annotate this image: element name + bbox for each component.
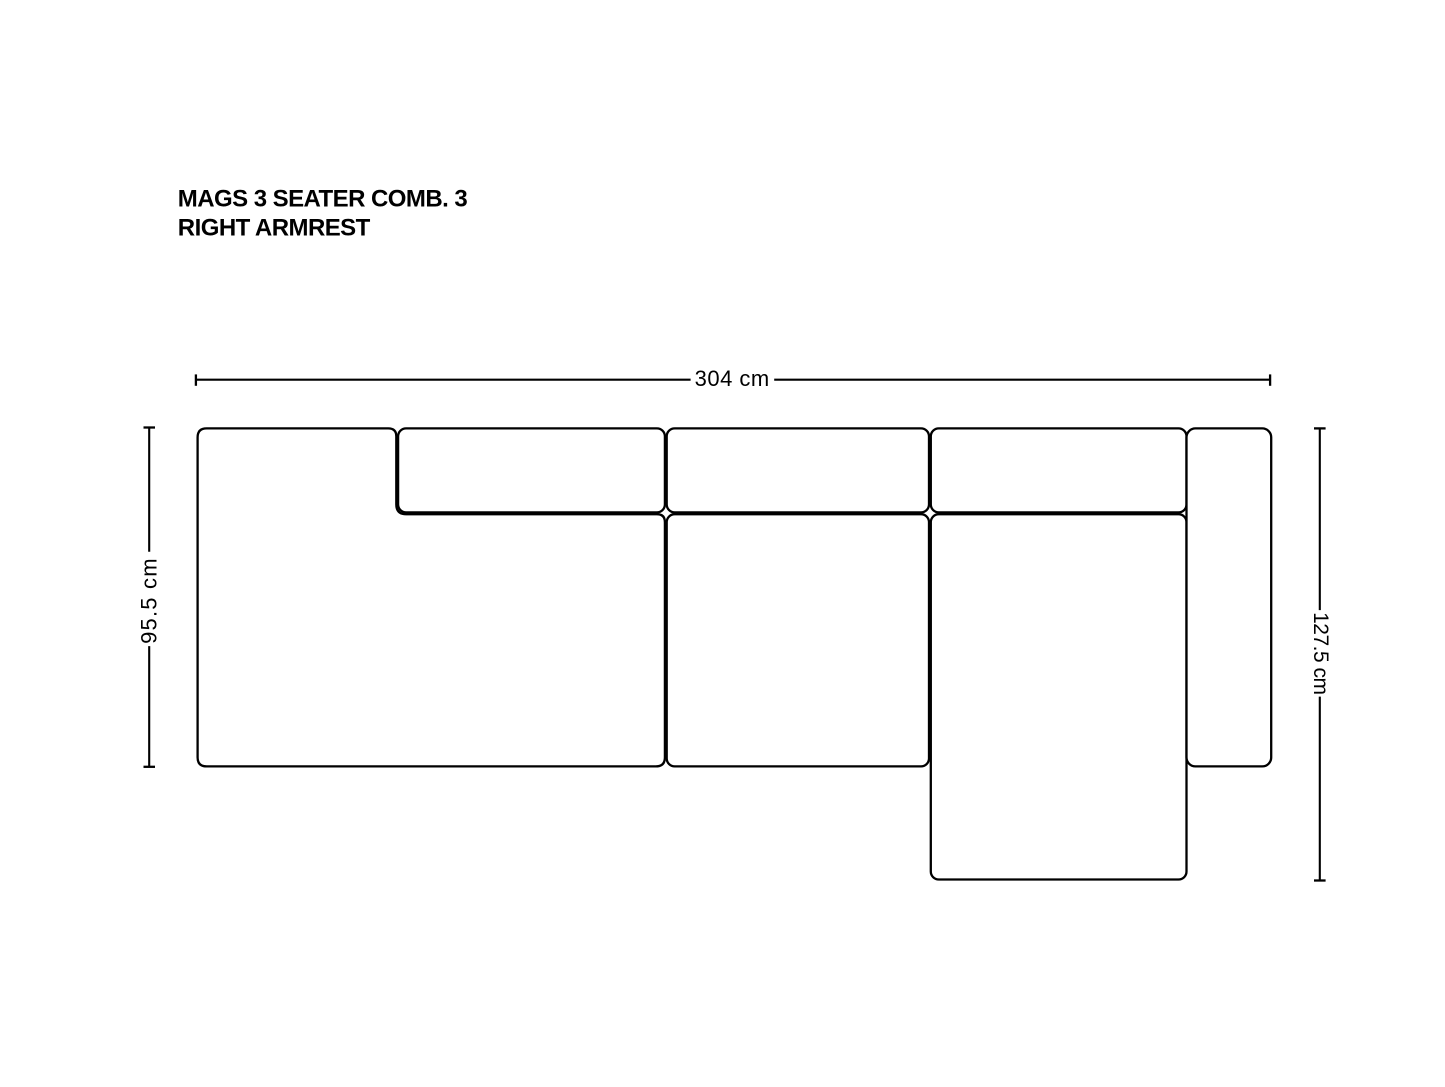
svg-text:MAGS 3 SEATER COMB. 3: MAGS 3 SEATER COMB. 3 xyxy=(178,186,468,213)
svg-text:304 cm: 304 cm xyxy=(695,366,770,391)
svg-text:127.5 cm: 127.5 cm xyxy=(1309,612,1332,694)
svg-text:95.5 cm: 95.5 cm xyxy=(136,557,161,644)
svg-text:RIGHT ARMREST: RIGHT ARMREST xyxy=(178,214,371,241)
